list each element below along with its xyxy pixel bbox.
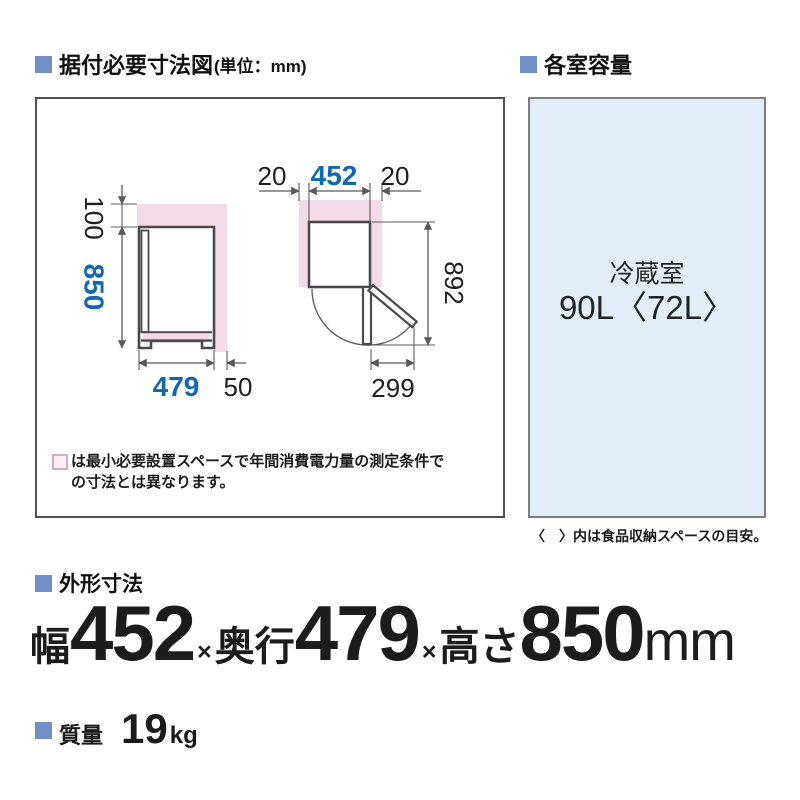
height-value: 850 <box>520 594 644 672</box>
side-view-base-clearance <box>143 334 210 341</box>
install-dimensions-header: 据付必要寸法図 (単位：mm) <box>35 48 307 80</box>
times-sign: × <box>422 638 437 667</box>
room-name: 冷蔵室 <box>530 259 764 289</box>
dim-label-depth-door-open: 892 <box>439 261 469 304</box>
section-bullet-icon <box>35 722 52 739</box>
top-view-door-open-diagonal <box>369 285 417 327</box>
side-view-fridge-outline <box>139 227 214 348</box>
dim-label-height: 850 <box>79 264 110 311</box>
dim-label-top-clearance: 100 <box>79 196 109 239</box>
installation-note: は最小必要設置スペースで年間消費電力量の測定条件で の寸法とは異なります。 <box>52 451 497 494</box>
weight-value: 19 <box>121 708 168 750</box>
section-bullet-icon <box>520 56 537 73</box>
dim-label-rear-clearance: 50 <box>224 372 253 402</box>
capacity-caption: 〈 〉内は食品収納スペースの目安。 <box>531 526 767 546</box>
dim-label-right-clearance: 20 <box>381 161 410 191</box>
weight-row: 質量 19 kg <box>35 708 198 750</box>
height-label: 高さ <box>440 614 520 672</box>
weight-unit: kg <box>170 722 198 750</box>
capacity-box: 冷蔵室 90L〈72L〉 <box>528 97 766 518</box>
room-volume: 90L〈72L〉 <box>530 289 764 327</box>
installation-diagram-box: 100 850 479 50 <box>35 97 505 518</box>
dimensions-unit: mm <box>644 608 735 673</box>
dim-label-door-swing: 299 <box>371 373 414 403</box>
side-view-top-clearance-area <box>137 204 227 227</box>
install-dimensions-unit: (単位：mm) <box>214 52 307 77</box>
section-bullet-icon <box>35 575 52 592</box>
installation-note-line1: は最小必要設置スペースで年間消費電力量の測定条件で <box>71 451 497 472</box>
weight-title: 質量 <box>59 718 103 750</box>
installation-note-line2: の寸法とは異なります。 <box>71 472 497 493</box>
top-view-door-open-90 <box>363 287 371 344</box>
spec-sheet-page: 据付必要寸法図 (単位：mm) 各室容量 <box>0 0 800 800</box>
capacity-title: 各室容量 <box>544 48 632 80</box>
outer-dimensions-line: 幅 452 × 奥行 479 × 高さ 850 mm <box>30 594 735 673</box>
section-bullet-icon <box>35 56 52 73</box>
pink-swatch-icon <box>52 454 68 470</box>
dim-label-width: 452 <box>311 160 358 191</box>
dim-label-depth: 479 <box>153 371 200 402</box>
dim-label-left-clearance: 20 <box>258 161 287 191</box>
width-label: 幅 <box>30 614 70 672</box>
install-dimensions-title: 据付必要寸法図 <box>59 48 213 80</box>
times-sign: × <box>197 638 212 667</box>
width-value: 452 <box>70 594 194 672</box>
depth-label: 奥行 <box>215 614 295 672</box>
door-swing-arc <box>312 289 411 345</box>
top-view-fridge-outline <box>309 222 370 287</box>
side-view-door <box>142 231 149 333</box>
depth-value: 479 <box>295 594 419 672</box>
capacity-header: 各室容量 <box>520 48 632 80</box>
side-view-rear-clearance-area <box>214 204 227 352</box>
